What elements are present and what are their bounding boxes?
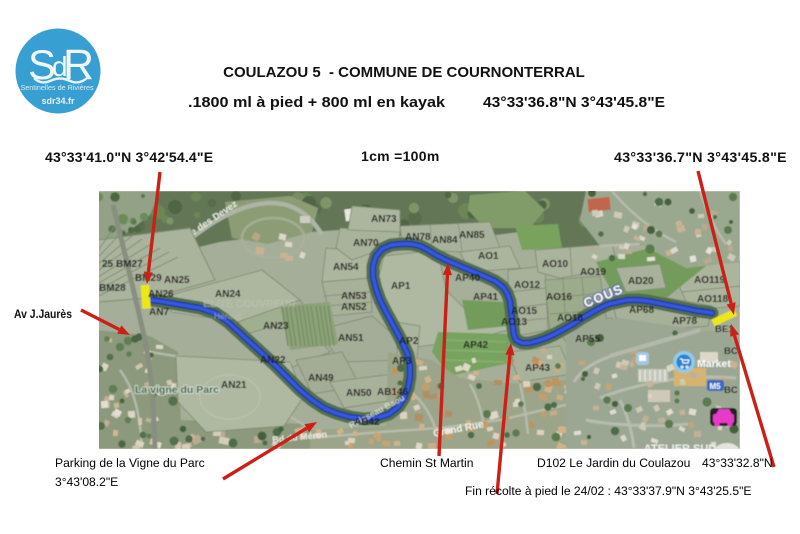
svg-text:43°33'36.8"N 3°43'45.8"E: 43°33'36.8"N 3°43'45.8"E xyxy=(483,94,665,111)
svg-text:sdr34.fr: sdr34.fr xyxy=(41,96,75,106)
svg-text:3°43'08.2"E: 3°43'08.2"E xyxy=(55,475,118,489)
svg-text:.1800 ml à pied + 800 ml en ka: .1800 ml à pied + 800 ml en kayak xyxy=(188,94,446,111)
svg-text:Parking de la Vigne du Parc: Parking de la Vigne du Parc xyxy=(55,456,205,470)
svg-text:43°33'32.8"N: 43°33'32.8"N xyxy=(702,456,773,470)
svg-text:Av J.Jaurès: Av J.Jaurès xyxy=(14,307,72,321)
svg-text:43°33'41.0"N 3°42'54.4"E: 43°33'41.0"N 3°42'54.4"E xyxy=(45,149,213,165)
svg-text:Chemin St Martin: Chemin St Martin xyxy=(380,456,473,470)
svg-text:D102 Le Jardin du Coulazou: D102 Le Jardin du Coulazou xyxy=(537,456,690,470)
svg-text:43°33'36.7"N 3°43'45.8"E: 43°33'36.7"N 3°43'45.8"E xyxy=(614,150,787,166)
svg-text:Fin récolte à pied le 24/02 :: Fin récolte à pied le 24/02 : 43°33'37.9… xyxy=(465,484,751,498)
svg-text:COULAZOU 5 - COMMUNE DE COURN: COULAZOU 5 - COMMUNE DE COURNONTERRAL xyxy=(223,64,585,81)
svg-text:1cm =100m: 1cm =100m xyxy=(361,148,440,164)
svg-text:Sentinelles de Rivières: Sentinelles de Rivières xyxy=(20,83,94,92)
